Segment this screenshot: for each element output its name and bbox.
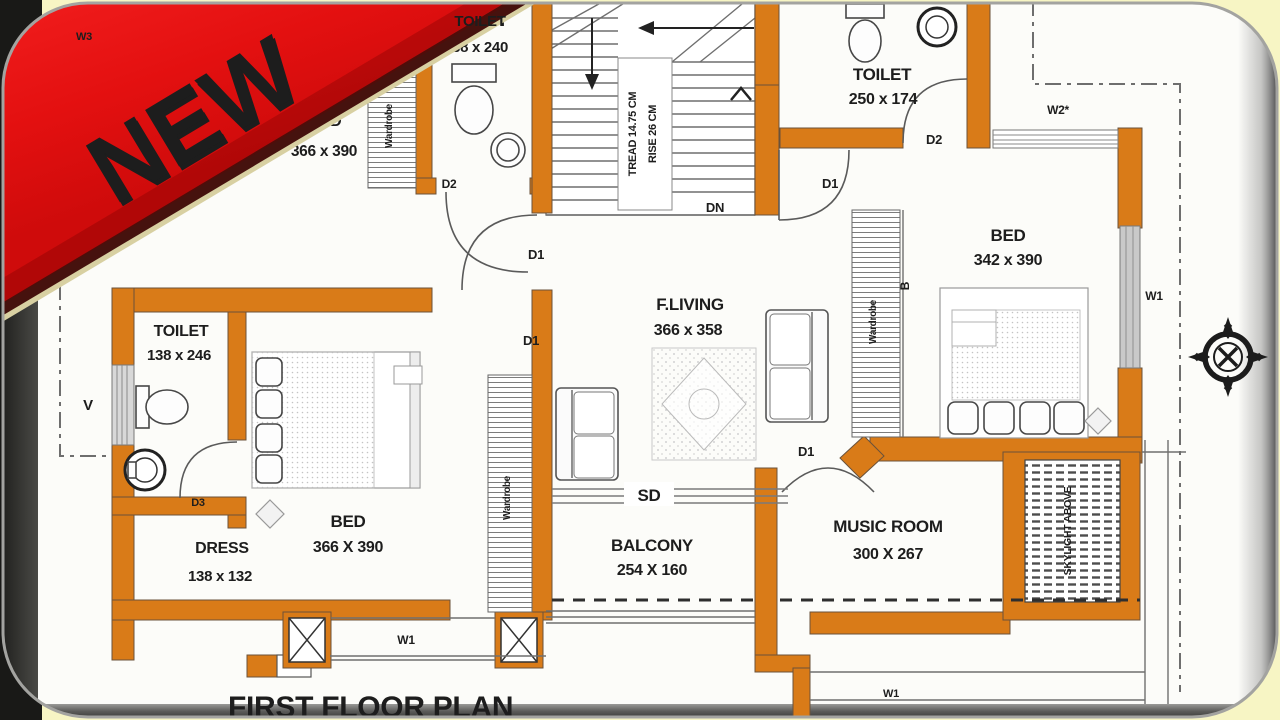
room-balcony-name: BALCONY <box>611 536 694 555</box>
window-right-wall <box>1120 226 1140 368</box>
window1-label: W1 <box>397 633 415 647</box>
door1-label: D1 <box>798 444 814 459</box>
room-dress-name: DRESS <box>195 540 249 557</box>
door1-label: D1 <box>528 247 544 262</box>
room-bed-right-name: BED <box>991 226 1026 245</box>
screenshot-root: TREAD 14.75 CM RISE 26 CM DN <box>0 0 1280 720</box>
room-dress-dims: 138 x 132 <box>188 568 252 585</box>
window1-label: W1 <box>883 688 899 700</box>
room-bed-left-dims: 366 X 390 <box>313 539 384 556</box>
room-bed-right-dims: 342 x 390 <box>974 252 1043 269</box>
door1-label: D1 <box>523 333 539 348</box>
room-toilet-top-right-dims: 250 x 174 <box>849 91 918 108</box>
window-left-wall <box>112 365 134 445</box>
photo-card: TREAD 14.75 CM RISE 26 CM DN <box>0 0 1280 720</box>
room-living-name: F.LIVING <box>656 295 724 314</box>
staircase: TREAD 14.75 CM RISE 26 CM DN <box>546 0 755 215</box>
window1-label: W1 <box>1145 289 1163 303</box>
wardrobe-label: Wardrobe <box>502 475 513 520</box>
room-bed-top-left-dims: 366 x 390 <box>291 143 357 160</box>
door3-label: D3 <box>191 497 205 509</box>
wardrobe-label: Wardrobe <box>384 103 395 148</box>
window2-label: W2* <box>1047 103 1069 117</box>
window-top-right <box>993 130 1118 148</box>
sofa-left <box>556 388 618 480</box>
room-music-name: MUSIC ROOM <box>833 517 943 536</box>
room-toilet-left-dims: 138 x 246 <box>147 347 211 364</box>
door1-label: D1 <box>822 176 838 191</box>
bath-marker-label: B <box>898 281 912 290</box>
room-toilet-top-right-name: TOILET <box>853 65 912 84</box>
wardrobe-right-strip: Wardrobe B <box>852 210 912 437</box>
room-bed-left-name: BED <box>331 512 366 531</box>
room-balcony-dims: 254 X 160 <box>617 562 688 579</box>
pillar-left <box>283 612 331 668</box>
door2-label: D2 <box>926 132 942 147</box>
room-toilet-left-name: TOILET <box>154 323 209 340</box>
stair-rise-label: RISE 26 CM <box>647 105 659 163</box>
stair-tread-label: TREAD 14.75 CM <box>627 92 639 177</box>
room-living-dims: 366 x 358 <box>654 322 723 339</box>
wardrobe-label: Wardrobe <box>868 299 879 344</box>
wardrobe-left-strip: Wardrobe <box>488 375 532 612</box>
vent-label: V <box>83 397 93 414</box>
window3-label-bleed: W3 <box>76 31 92 43</box>
sliding-door-label: SD <box>637 486 660 505</box>
sofa-right <box>766 310 828 422</box>
room-music-dims: 300 X 267 <box>853 546 924 563</box>
pillar-right <box>495 612 543 668</box>
floor-plan-promo-image: TREAD 14.75 CM RISE 26 CM DN <box>0 0 1280 720</box>
living-rug <box>652 348 756 460</box>
door2-label: D2 <box>442 177 457 191</box>
toilet-top-bleed: TOILET <box>454 13 505 30</box>
skylight-label: SKYLIGHT ABOVE <box>1062 486 1074 575</box>
bed-right-furniture <box>940 288 1111 438</box>
stair-dn-label: DN <box>706 200 724 215</box>
skylight-area: SKYLIGHT ABOVE <box>1025 460 1120 602</box>
